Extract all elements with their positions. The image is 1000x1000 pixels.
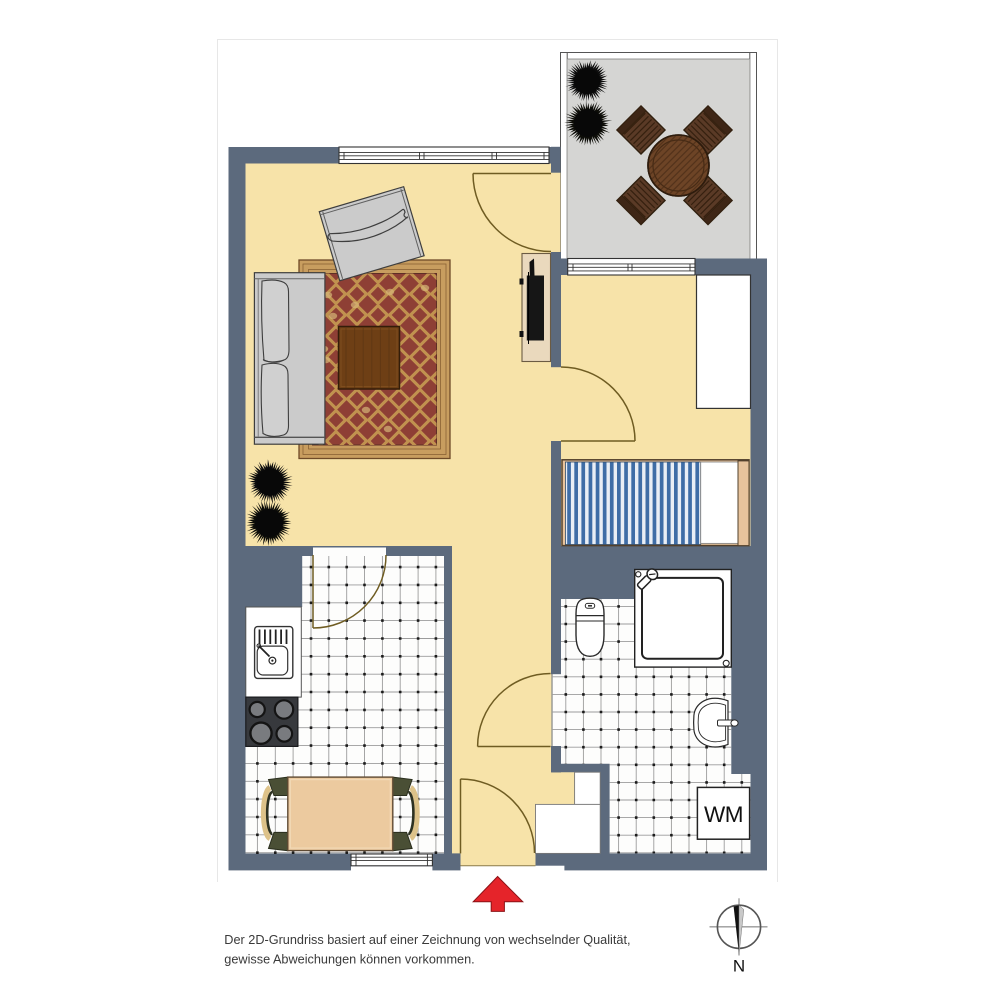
svg-text:Der 2D-Grundriss basiert auf e: Der 2D-Grundriss basiert auf einer Zeich…: [224, 933, 630, 947]
svg-text:gewisse Abweichungen können vo: gewisse Abweichungen können vorkommen.: [224, 952, 474, 966]
svg-text:N: N: [733, 957, 745, 976]
svg-text:WM: WM: [704, 802, 743, 827]
